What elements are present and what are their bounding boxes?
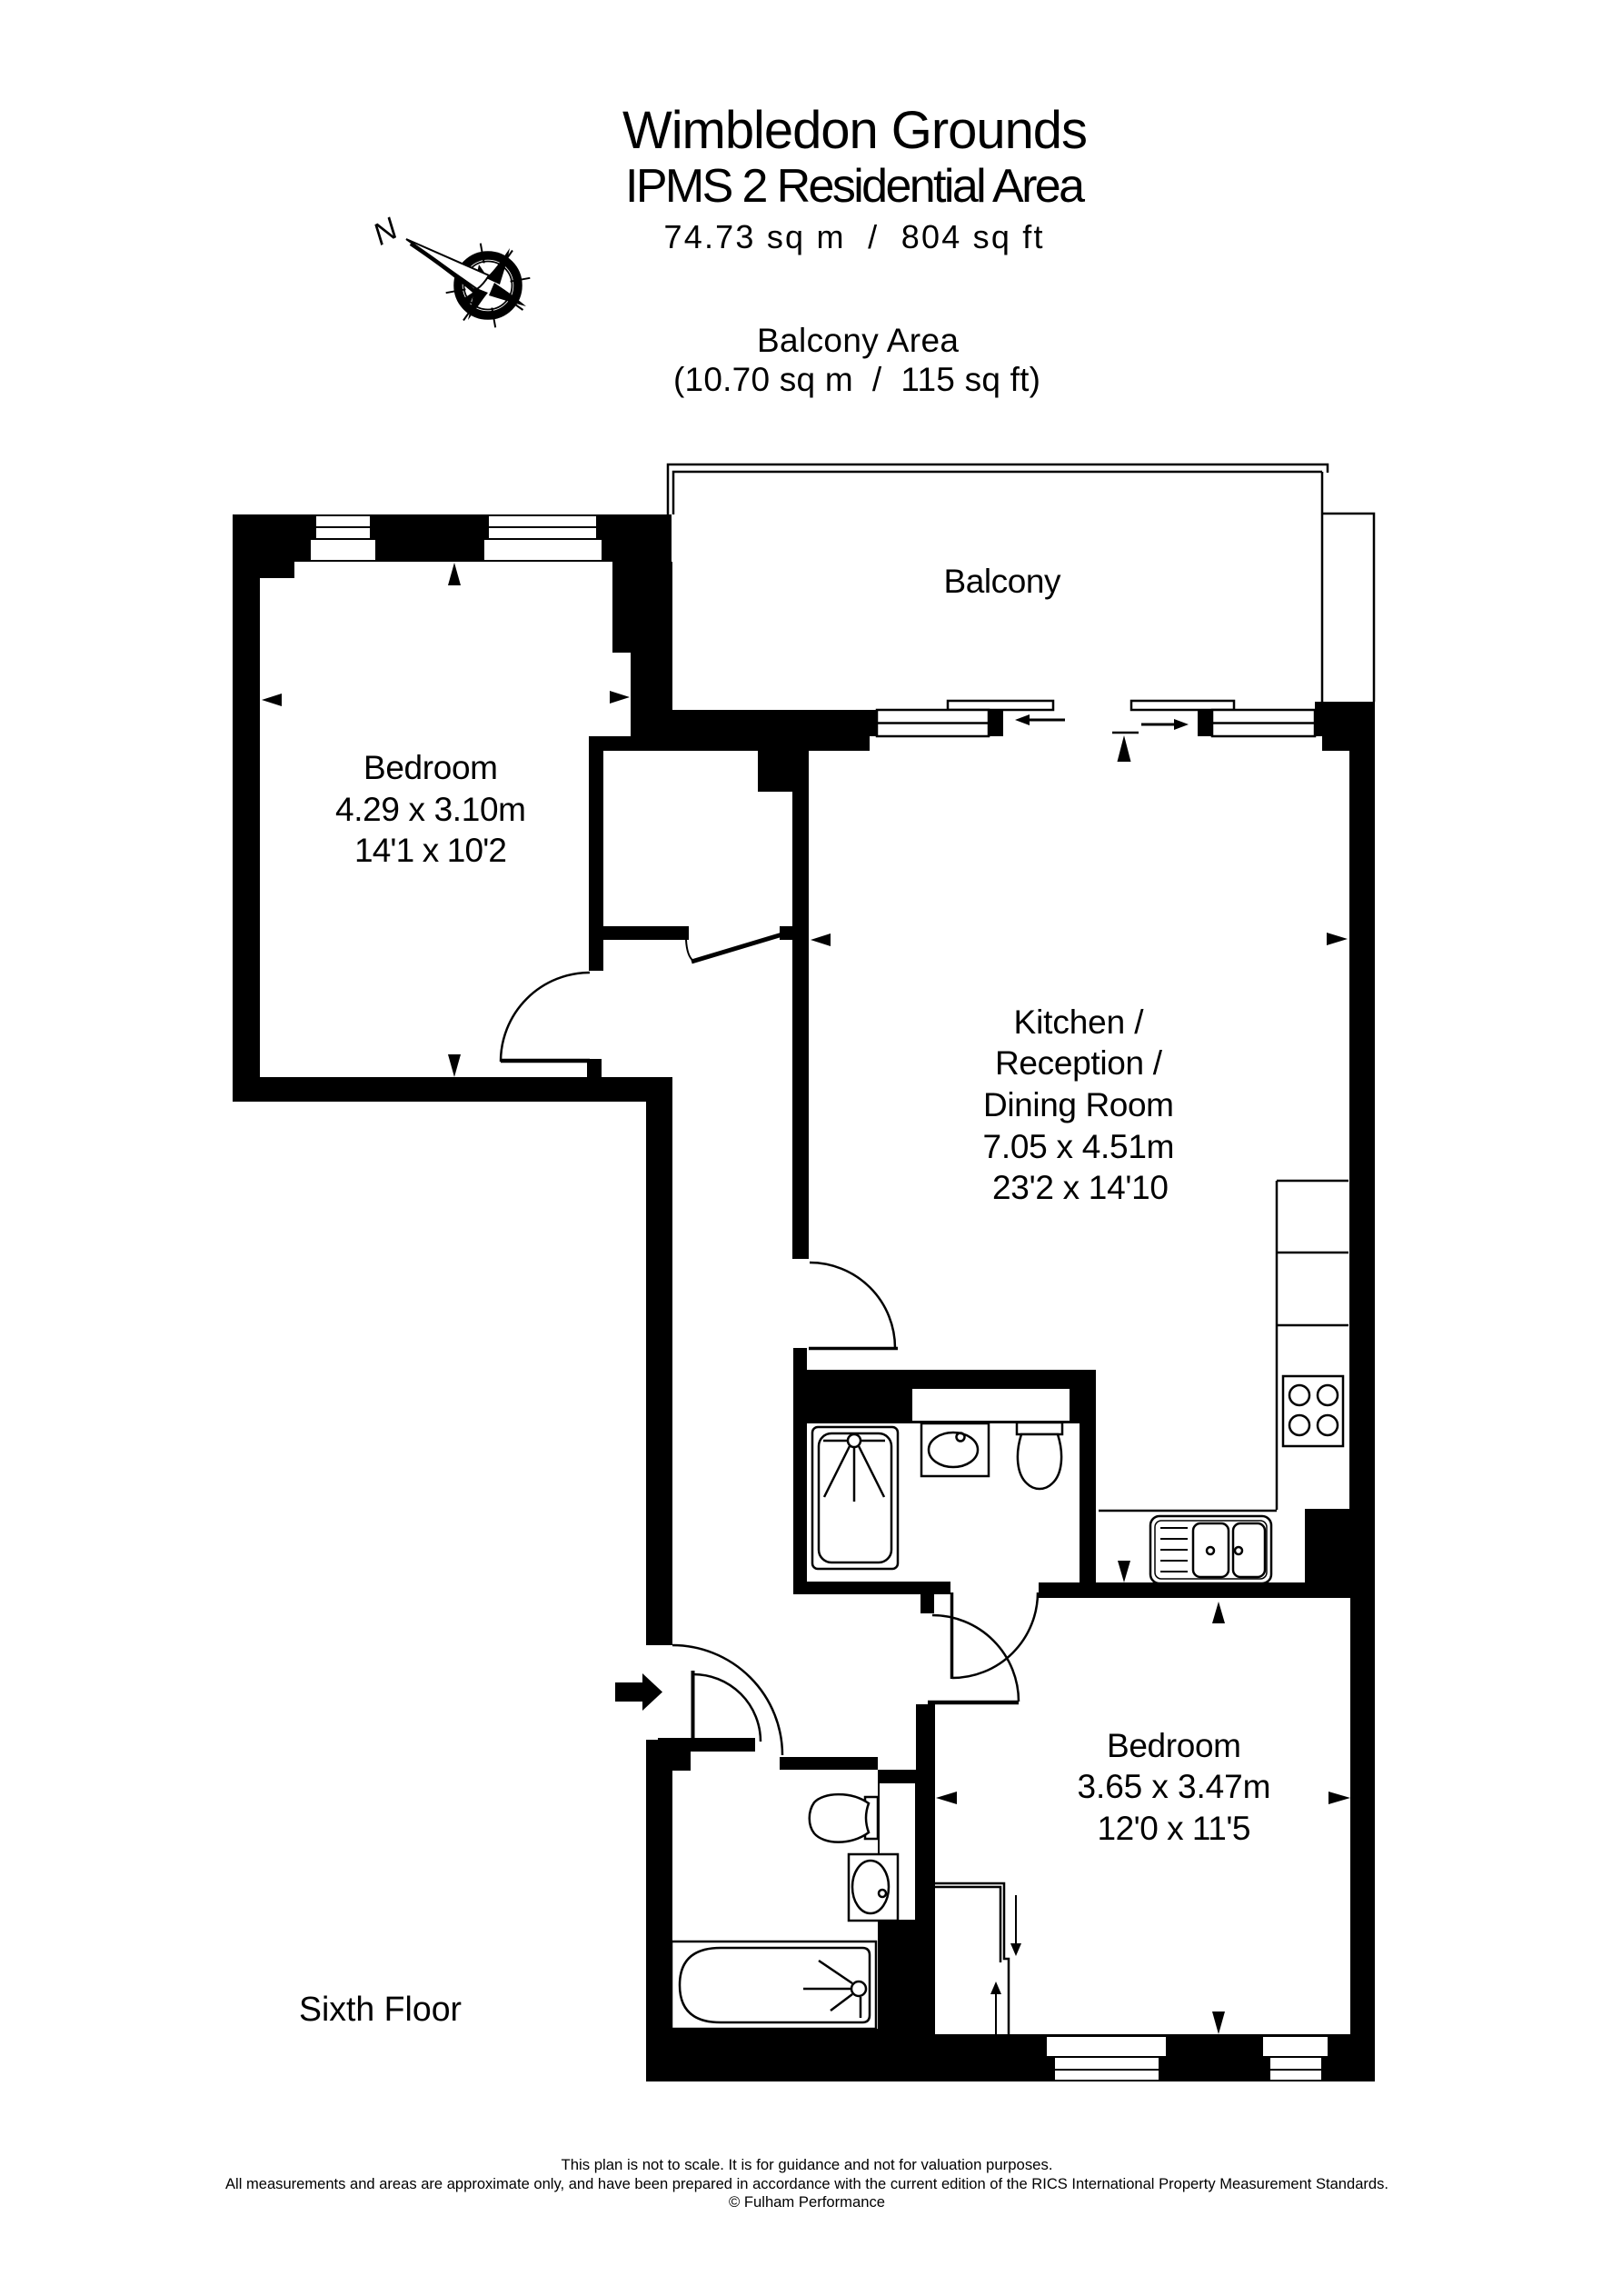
svg-text:IPMS 2 Residential Area: IPMS 2 Residential Area [625,160,1085,213]
svg-text:4.29 x 3.10m: 4.29 x 3.10m [335,791,526,828]
svg-text:74.73 sq m / 804 sq ft: 74.73 sq m / 804 sq ft [664,218,1043,255]
svg-text:3.65 x 3.47m: 3.65 x 3.47m [1078,1768,1271,1805]
svg-text:Bedroom: Bedroom [363,749,498,786]
svg-text:Balcony Area: Balcony Area [757,322,959,359]
svg-text:Dining Room: Dining Room [983,1086,1174,1123]
svg-text:Sixth Floor: Sixth Floor [299,1991,462,2029]
svg-text:Balcony: Balcony [944,563,1062,600]
svg-text:23'2 x 14'10: 23'2 x 14'10 [992,1169,1169,1206]
svg-text:(10.70 sq m / 115 sq ft): (10.70 sq m / 115 sq ft) [673,361,1040,398]
svg-text:Kitchen /: Kitchen / [1014,1003,1145,1041]
svg-text:14'1 x 10'2: 14'1 x 10'2 [354,832,507,869]
svg-text:7.05 x 4.51m: 7.05 x 4.51m [983,1128,1175,1165]
svg-text:12'0 x 11'5: 12'0 x 11'5 [1098,1810,1251,1847]
svg-text:Bedroom: Bedroom [1107,1727,1241,1764]
svg-text:© Fulham Performance: © Fulham Performance [729,2193,885,2211]
svg-text:Wimbledon Grounds: Wimbledon Grounds [622,101,1088,160]
svg-text:All measurements and areas are: All measurements and areas are approxima… [225,2175,1388,2192]
svg-text:Reception /: Reception / [995,1044,1163,1082]
svg-text:This plan is not to scale. It: This plan is not to scale. It is for gui… [562,2156,1053,2173]
